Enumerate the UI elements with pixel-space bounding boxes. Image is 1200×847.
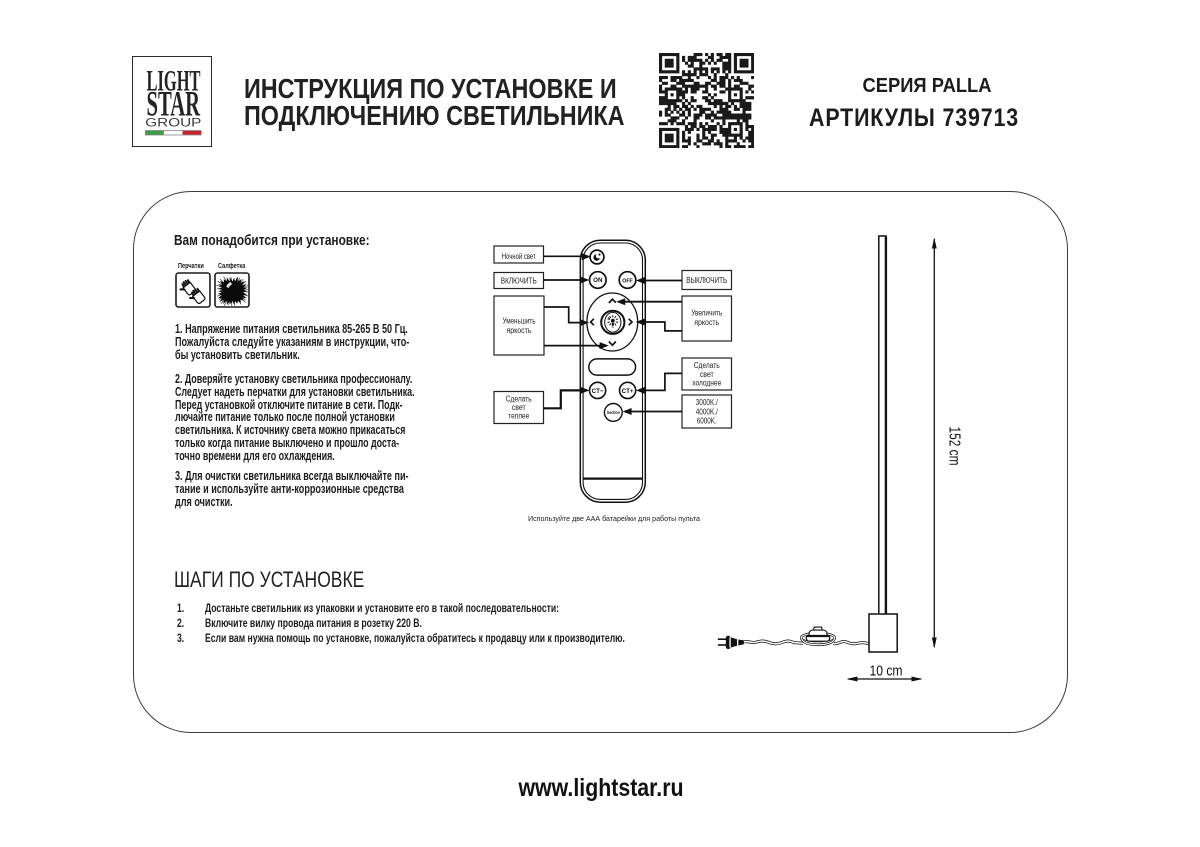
svg-text:GROUP: GROUP <box>145 118 201 130</box>
svg-text:Уменьшить: Уменьшить <box>503 317 536 326</box>
svg-text:теплее: теплее <box>508 412 529 421</box>
svg-text:ВКЛЮЧИТЬ: ВКЛЮЧИТЬ <box>501 277 537 286</box>
svg-text:Ночной свет: Ночной свет <box>502 252 536 261</box>
svg-text:яркость: яркость <box>507 326 532 335</box>
svg-text:Section: Section <box>607 410 620 415</box>
svg-text:ON: ON <box>593 277 603 284</box>
svg-text:Используйте две ААА батарейки: Используйте две ААА батарейки для работы… <box>528 515 700 523</box>
svg-text:OFF: OFF <box>622 278 633 284</box>
svg-text:CT−: CT− <box>592 388 604 395</box>
svg-text:CT+: CT+ <box>622 388 634 395</box>
svg-text:10 cm: 10 cm <box>870 664 903 680</box>
svg-text:152 cm: 152 cm <box>946 427 963 466</box>
